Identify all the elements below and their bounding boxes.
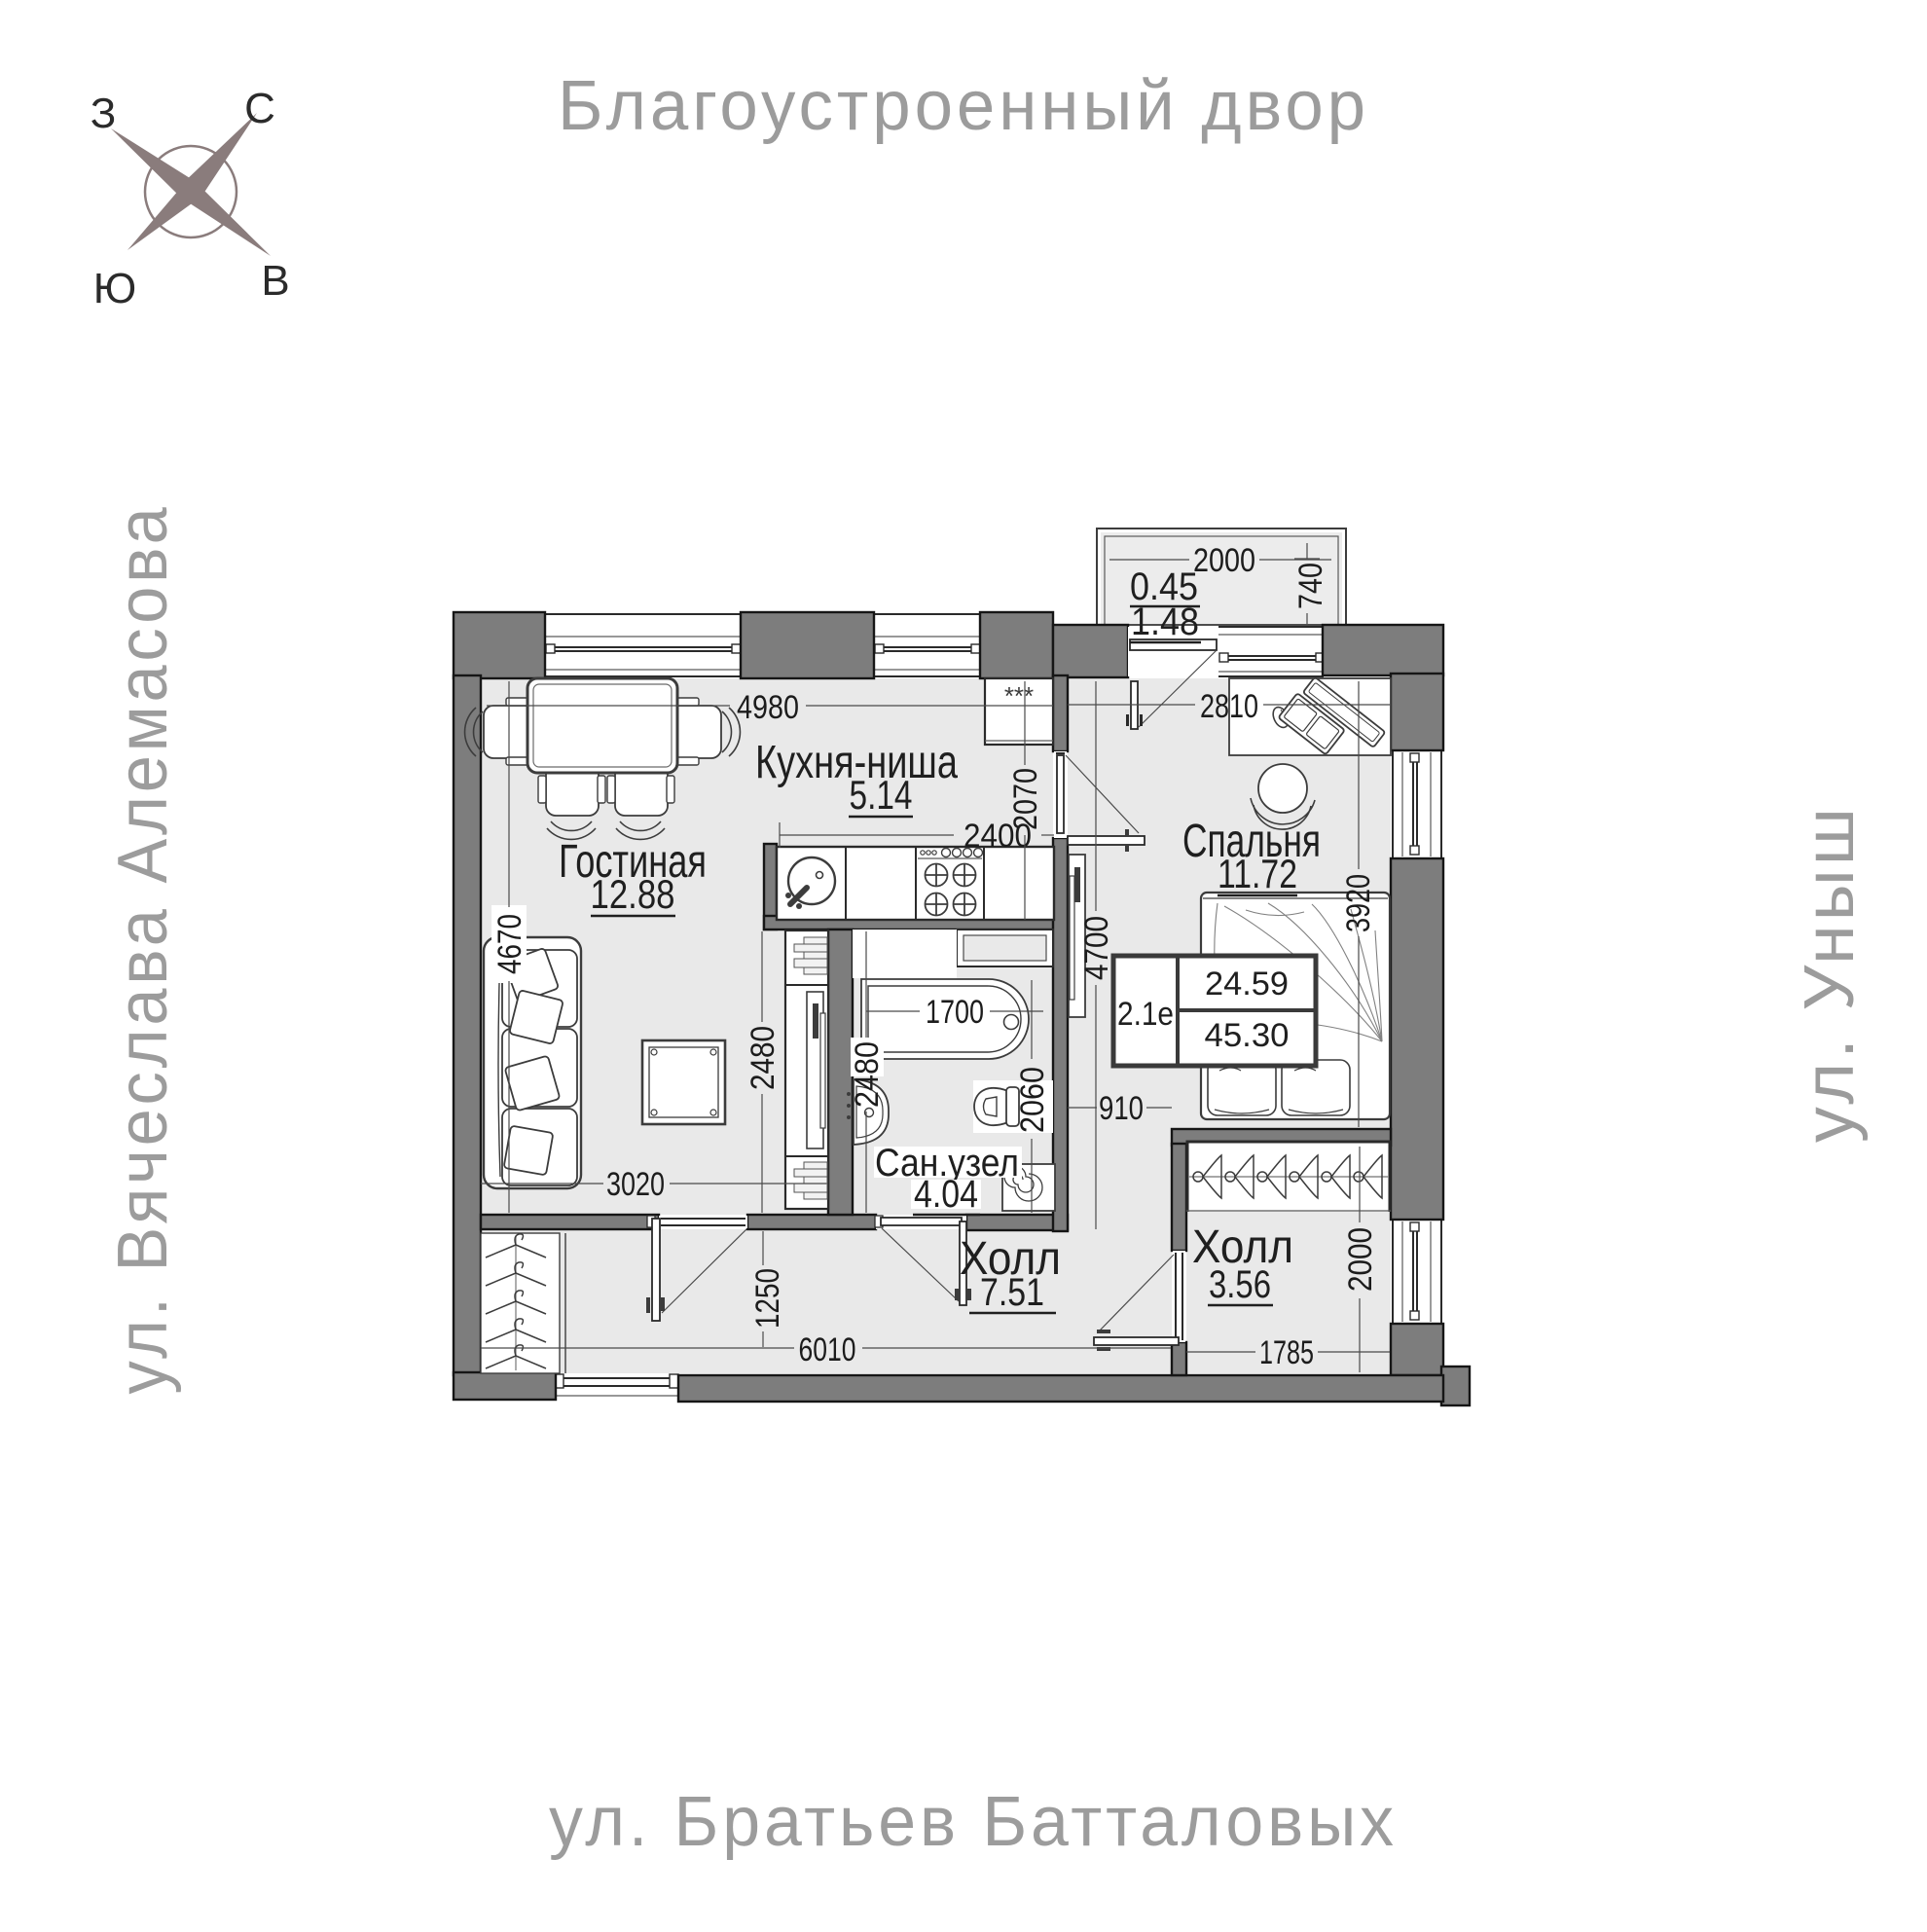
svg-text:1785: 1785 <box>1259 1334 1314 1371</box>
svg-text:11.72: 11.72 <box>1218 851 1297 896</box>
svg-text:740: 740 <box>1292 563 1329 609</box>
svg-text:3920: 3920 <box>1340 874 1377 932</box>
svg-text:Благоустроенный двор: Благоустроенный двор <box>558 67 1369 145</box>
svg-text:4.04: 4.04 <box>914 1173 978 1216</box>
svg-text:ул. Братьев Батталовых: ул. Братьев Батталовых <box>549 1783 1398 1861</box>
svg-text:1.48: 1.48 <box>1131 601 1199 643</box>
svg-text:3.56: 3.56 <box>1209 1263 1271 1306</box>
svg-text:2000: 2000 <box>1193 542 1255 579</box>
svg-text:2070: 2070 <box>1007 768 1044 830</box>
svg-text:2000: 2000 <box>1342 1227 1379 1292</box>
svg-text:4980: 4980 <box>737 689 799 726</box>
svg-text:5.14: 5.14 <box>850 772 913 818</box>
svg-text:12.88: 12.88 <box>591 871 675 917</box>
svg-text:С: С <box>244 85 275 132</box>
svg-text:7.51: 7.51 <box>980 1271 1044 1314</box>
svg-text:2.1е: 2.1е <box>1117 996 1174 1033</box>
svg-text:З: З <box>91 90 117 137</box>
svg-text:Ю: Ю <box>93 265 136 312</box>
svg-text:2060: 2060 <box>1014 1067 1051 1133</box>
svg-text:1250: 1250 <box>749 1268 786 1329</box>
svg-text:910: 910 <box>1099 1090 1144 1127</box>
svg-text:ул. Уныш: ул. Уныш <box>1791 804 1869 1143</box>
svg-text:ул. Вячеслава Алемасова: ул. Вячеслава Алемасова <box>104 504 182 1395</box>
svg-text:1700: 1700 <box>926 994 984 1031</box>
svg-text:6010: 6010 <box>799 1331 856 1368</box>
svg-text:4670: 4670 <box>491 914 528 974</box>
svg-text:3020: 3020 <box>606 1166 665 1203</box>
svg-text:В: В <box>261 257 289 305</box>
svg-text:2480: 2480 <box>745 1026 782 1090</box>
svg-text:4700: 4700 <box>1078 916 1115 980</box>
svg-text:24.59: 24.59 <box>1205 966 1289 1002</box>
svg-text:45.30: 45.30 <box>1205 1017 1290 1054</box>
svg-text:2810: 2810 <box>1200 688 1258 725</box>
svg-text:2480: 2480 <box>849 1041 886 1108</box>
